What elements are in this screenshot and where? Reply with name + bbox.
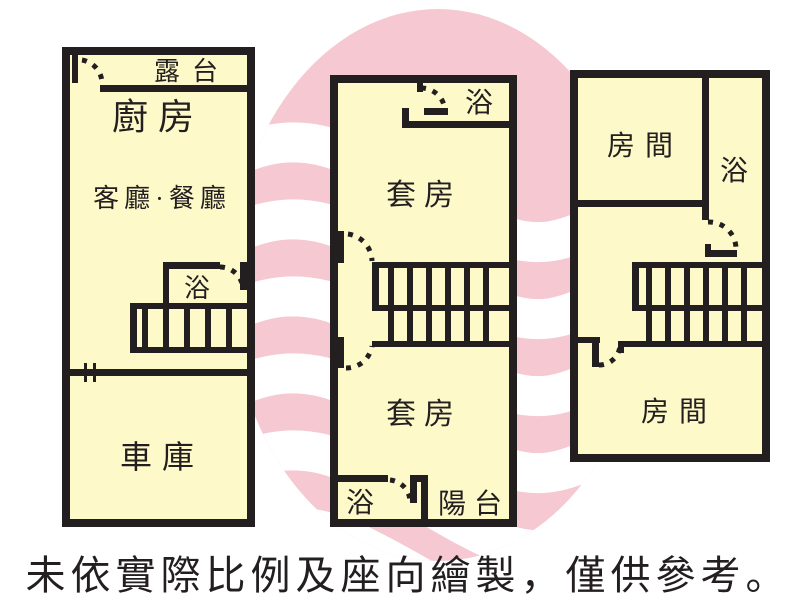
room-label-room-top: 房間: [607, 130, 683, 162]
room-label-living-dining: 客廳·餐廳: [93, 184, 231, 213]
room-label-room-bottom: 房間: [641, 396, 717, 428]
floor-plan-left: 露台 廚房 客廳·餐廳 浴 車庫: [62, 47, 255, 527]
disclaimer-text: 未依實際比例及座向繪製，僅供參考。: [26, 553, 791, 598]
room-label-kitchen: 廚房: [112, 97, 204, 137]
room-label-bath: 浴: [184, 274, 210, 303]
room-label-bath: 浴: [720, 155, 748, 187]
room-label-suite-upper: 套房: [386, 179, 462, 212]
floor-plan-canvas: 露台 廚房 客廳·餐廳 浴 車庫: [0, 0, 800, 600]
room-label-garage: 車庫: [120, 439, 204, 475]
room-label-suite-lower: 套房: [386, 398, 462, 431]
room-label-terrace: 露台: [154, 57, 230, 86]
room-label-bath-top: 浴: [465, 87, 493, 119]
floor-plan-image: 露台 廚房 客廳·餐廳 浴 車庫: [0, 0, 800, 600]
staircase: [130, 303, 247, 353]
floor-plan-right: 房間 浴 房間: [570, 70, 770, 462]
room-label-bath-bottom: 浴: [346, 487, 374, 519]
room-label-balcony: 陽台: [438, 488, 510, 520]
floor-plan-middle: 浴 套房 套房 浴 陽台: [330, 75, 517, 527]
